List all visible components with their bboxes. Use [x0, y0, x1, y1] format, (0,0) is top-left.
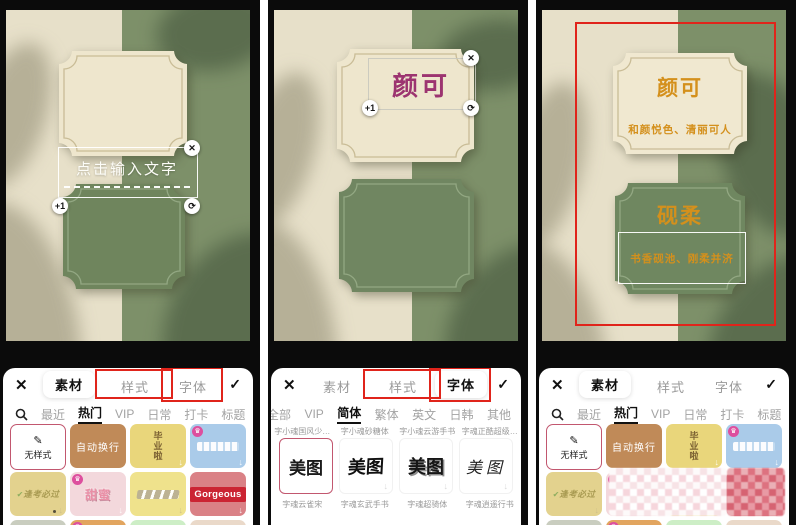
- font-sample[interactable]: 美图 ↓: [339, 438, 393, 494]
- annotation-box-font-tab: [429, 368, 491, 402]
- sticker-category-bar: 最近 热门 VIP 日常 打卡 标题: [3, 402, 253, 426]
- download-icon: ↓: [179, 457, 184, 467]
- font-name[interactable]: 字魂玄武手书: [334, 499, 397, 510]
- download-icon: ↓: [119, 505, 124, 515]
- sticker-pass-exam[interactable]: ✔ 逢考必过 ↓: [10, 472, 66, 516]
- sticker-grid-row3-partial: ♛: [546, 520, 782, 525]
- bottom-plaque-card[interactable]: [62, 183, 186, 290]
- download-icon: ↓: [179, 505, 184, 515]
- font-name[interactable]: 字魂云雀宋: [271, 499, 334, 510]
- sticker-blue-vip[interactable]: ♛ ↓: [726, 424, 782, 468]
- sticker-label: 无样式: [560, 448, 587, 461]
- bottom-sheet: ✕ 素材 样式 字体 ✓ 最近 热门 VIP 日常 打卡 标题 ✎ 无样式: [539, 368, 789, 525]
- close-icon[interactable]: ✕: [551, 376, 564, 394]
- confirm-check-icon[interactable]: ✓: [765, 376, 777, 393]
- sticker-partial[interactable]: [666, 520, 722, 525]
- sticker-label: 自动换行: [76, 439, 120, 454]
- font-name[interactable]: 字魂逍遥行书: [459, 499, 522, 510]
- sticker-partial[interactable]: ♛: [70, 520, 126, 525]
- leaf-shadow: [274, 63, 335, 236]
- font-name[interactable]: 字魂超骑体: [396, 499, 459, 510]
- category-recent[interactable]: 最近: [41, 406, 65, 423]
- text-placeholder[interactable]: 点击输入文字: [58, 158, 196, 179]
- illegible-sticker-text: [197, 442, 239, 451]
- sticker-gorgeous[interactable]: Gorgeous ↓: [190, 472, 246, 516]
- top-plaque-card[interactable]: [58, 50, 188, 157]
- category-simplified[interactable]: 简体: [337, 404, 361, 424]
- category-checkin[interactable]: 打卡: [184, 406, 208, 423]
- category-vip[interactable]: VIP: [651, 407, 670, 421]
- tab-material[interactable]: 素材: [43, 371, 95, 398]
- censor-mosaic-white: [609, 468, 727, 516]
- category-recent[interactable]: 最近: [577, 406, 601, 423]
- sticker-no-style[interactable]: ✎ 无样式: [10, 424, 66, 470]
- annotation-box-canvas: [575, 22, 776, 326]
- editor-canvas[interactable]: 颜可 和颜悦色、清丽可人 砚柔 书香砚池、刚柔并济: [542, 10, 786, 341]
- sticker-label: 逢考必过: [559, 488, 595, 500]
- sticker-label: 毕业啦: [688, 431, 701, 461]
- card-text[interactable]: 颜可: [368, 66, 474, 103]
- sticker-label: 无样式: [24, 448, 51, 461]
- sticker-partial[interactable]: [10, 520, 66, 525]
- download-icon: ↓: [384, 481, 389, 491]
- font-sample-selected[interactable]: 美图: [279, 438, 333, 494]
- font-sample-text: 美图: [289, 454, 323, 479]
- bottom-plaque-card[interactable]: [338, 178, 475, 293]
- annotation-box-font-tab: [161, 368, 223, 402]
- tab-material[interactable]: 素材: [323, 377, 351, 396]
- tab-font[interactable]: 字体: [715, 377, 743, 396]
- vip-crown-icon: ♛: [192, 426, 203, 437]
- font-sample[interactable]: 美图 ↓: [399, 438, 453, 494]
- add-one-button[interactable]: +1: [52, 198, 68, 214]
- vip-crown-icon: ♛: [728, 426, 739, 437]
- sticker-label: 毕业啦: [152, 431, 165, 461]
- sticker-yellow-stylized[interactable]: ↓: [130, 472, 186, 516]
- download-icon: ↓: [239, 505, 244, 515]
- tab-style[interactable]: 样式: [657, 377, 685, 396]
- sticker-no-style[interactable]: ✎ 无样式: [546, 424, 602, 470]
- close-icon[interactable]: ✕: [15, 376, 28, 394]
- sheet-header: ✕ 素材 样式 字体 ✓: [271, 368, 521, 402]
- font-name[interactable]: 字小魂国风少…: [271, 426, 334, 437]
- sticker-label: 自动换行: [612, 439, 656, 454]
- font-name[interactable]: 字小魂砂糖体: [334, 426, 397, 437]
- font-labels-bottom: 字魂云雀宋 字魂玄武手书 字魂超骑体 字魂逍遥行书: [271, 499, 521, 510]
- sticker-grid-row1: ✎ 无样式 自动换行 毕业啦 ↓ ♛ ↓: [10, 424, 246, 470]
- illegible-sticker-text: [733, 442, 775, 451]
- delete-text-button[interactable]: ✕: [463, 50, 479, 66]
- category-daily[interactable]: 日常: [147, 406, 171, 423]
- category-title[interactable]: 标题: [221, 406, 245, 423]
- category-vip[interactable]: VIP: [304, 407, 323, 421]
- sticker-blue-vip[interactable]: ♛ ↓: [190, 424, 246, 468]
- bottom-sheet: ✕ 素材 样式 字体 ✓ 最近 热门 VIP 日常 打卡 标题 ✎ 无样: [3, 368, 253, 525]
- font-sample-text: 美图: [408, 453, 444, 479]
- sticker-grid-row3-partial: ♛: [10, 520, 246, 525]
- category-traditional[interactable]: 繁体: [375, 406, 399, 423]
- rotate-handle[interactable]: ⟳: [463, 100, 479, 116]
- illegible-sticker-text: [136, 490, 179, 499]
- editor-canvas[interactable]: 点击输入文字 ✕ +1 ⟳: [6, 10, 250, 341]
- sticker-auto-wrap[interactable]: 自动换行: [606, 424, 662, 468]
- category-daily[interactable]: 日常: [683, 406, 707, 423]
- phone-panel-2: 颜可 ✕ +1 ⟳ ✕ 素材 样式 字体 ✓ 全部 VIP 简体 繁体 英文 日…: [268, 0, 528, 525]
- bottom-sheet: ✕ 素材 样式 字体 ✓ 全部 VIP 简体 繁体 英文 日韩 其他 字小魂国风…: [271, 368, 521, 525]
- sheet-header: ✕ 素材 样式 字体 ✓: [3, 368, 253, 402]
- sticker-label: Gorgeous: [190, 487, 246, 502]
- pencil-icon: ✎: [569, 434, 578, 447]
- sticker-category-bar: 最近 热门 VIP 日常 打卡 标题: [539, 402, 789, 426]
- category-english[interactable]: 英文: [412, 406, 436, 423]
- sticker-graduation[interactable]: 毕业啦 ↓: [130, 424, 186, 468]
- font-labels-top: 字小魂国风少… 字小魂砂糖体 字小魂云游手书 字魂正酷超级…: [271, 426, 521, 437]
- phone-panel-3: 颜可 和颜悦色、清丽可人 砚柔 书香砚池、刚柔并济 ✕ 素材 样式 字体 ✓ 最…: [536, 0, 796, 525]
- sticker-label: 逢考必过: [23, 488, 59, 500]
- font-sample-grid: 美图 美图 ↓ 美图 ↓ 美图 ↓: [279, 438, 513, 494]
- sticker-partial[interactable]: [190, 520, 246, 525]
- font-sample[interactable]: 美图 ↓: [459, 438, 513, 494]
- phone-panel-1: 点击输入文字 ✕ +1 ⟳ ✕ 素材 样式 字体 ✓ 最近 热门 VIP 日常: [0, 0, 260, 525]
- sticker-partial[interactable]: [726, 520, 782, 525]
- font-sample-text: 美图: [347, 452, 384, 479]
- check-decoration: ✔: [553, 490, 560, 499]
- sticker-partial[interactable]: [546, 520, 602, 525]
- download-icon: ↓: [715, 457, 720, 467]
- download-icon: ↓: [595, 505, 600, 515]
- category-all[interactable]: 全部: [271, 406, 291, 423]
- download-icon: ↓: [775, 457, 780, 467]
- editor-canvas[interactable]: 颜可 ✕ +1 ⟳: [274, 10, 518, 341]
- confirm-check-icon[interactable]: ✓: [497, 376, 509, 393]
- category-jp-kr[interactable]: 日韩: [450, 406, 474, 423]
- sticker-partial[interactable]: [130, 520, 186, 525]
- search-icon[interactable]: [15, 408, 28, 421]
- sticker-pass-exam[interactable]: ✔ 逢考必过 ↓: [546, 472, 602, 516]
- font-name[interactable]: 字小魂云游手书: [396, 426, 459, 437]
- font-category-bar: 全部 VIP 简体 繁体 英文 日韩 其他: [271, 402, 521, 426]
- dashed-underline: [64, 186, 190, 188]
- sticker-sweet[interactable]: ♛ 甜蜜 ↓: [70, 472, 126, 516]
- confirm-check-icon[interactable]: ✓: [229, 376, 241, 393]
- close-icon[interactable]: ✕: [283, 376, 296, 394]
- sticker-partial[interactable]: ♛: [606, 520, 662, 525]
- vip-crown-icon: ♛: [72, 474, 83, 485]
- check-decoration: ✔: [17, 490, 24, 499]
- rotate-handle[interactable]: ⟳: [184, 198, 200, 214]
- tab-material[interactable]: 素材: [579, 371, 631, 398]
- font-sample-text: 美图: [466, 454, 506, 478]
- pencil-icon: ✎: [33, 434, 42, 447]
- sticker-label: 甜蜜: [85, 486, 111, 503]
- sticker-graduation[interactable]: 毕业啦 ↓: [666, 424, 722, 468]
- font-name[interactable]: 字魂正酷超级…: [459, 426, 522, 437]
- category-hot[interactable]: 热门: [78, 404, 102, 424]
- download-icon: ↓: [444, 481, 449, 491]
- sticker-grid-row2: ✔ 逢考必过 ↓ ♛ 甜蜜 ↓ ↓ Gorgeous ↓: [10, 472, 246, 516]
- dot-decoration: [53, 510, 56, 513]
- download-icon: ↓: [504, 481, 509, 491]
- category-other[interactable]: 其他: [487, 406, 511, 423]
- category-hot[interactable]: 热门: [614, 404, 638, 424]
- screenshot-triptych: 点击输入文字 ✕ +1 ⟳ ✕ 素材 样式 字体 ✓ 最近 热门 VIP 日常: [0, 0, 796, 525]
- add-one-button[interactable]: +1: [362, 100, 378, 116]
- sticker-auto-wrap[interactable]: 自动换行: [70, 424, 126, 468]
- category-vip[interactable]: VIP: [115, 407, 134, 421]
- delete-text-button[interactable]: ✕: [184, 140, 200, 156]
- search-icon[interactable]: [551, 408, 564, 421]
- censor-mosaic-red: [727, 468, 785, 516]
- category-checkin[interactable]: 打卡: [720, 406, 744, 423]
- sticker-grid-row1: ✎ 无样式 自动换行 毕业啦 ↓ ♛ ↓: [546, 424, 782, 470]
- category-title[interactable]: 标题: [757, 406, 781, 423]
- download-icon: ↓: [239, 457, 244, 467]
- download-icon: ↓: [59, 505, 64, 515]
- sheet-header: ✕ 素材 样式 字体 ✓: [539, 368, 789, 402]
